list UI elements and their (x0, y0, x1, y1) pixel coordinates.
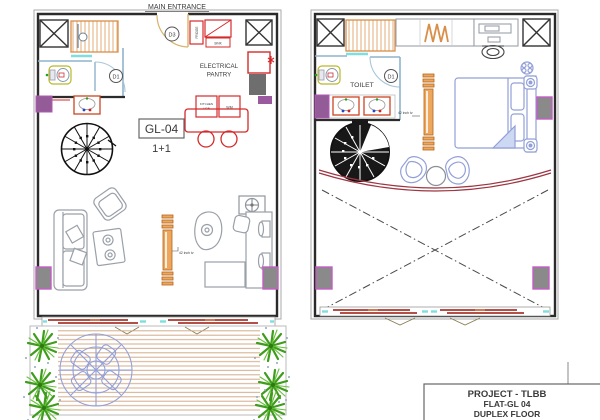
void-cross (322, 190, 548, 310)
hob-label-1: KITCHEN (200, 102, 213, 106)
floor-title: DUPLEX FLOOR (474, 409, 541, 419)
toilet-label: TOILET (350, 82, 374, 89)
tv-unit-left: 42 inch tv (162, 215, 194, 285)
bed (455, 62, 537, 152)
floor-plan-sheet: MAIN ENTRANCE D3 D1 (0, 0, 600, 420)
plants-left (23, 327, 61, 420)
toilet-fixture-icon (46, 66, 71, 84)
washbasin-icon (364, 97, 390, 115)
sofa (54, 210, 87, 290)
right-floor-plan: D1 TOILET 42 inch tv (311, 10, 558, 325)
sitting-area (397, 153, 474, 188)
column (315, 95, 329, 118)
pantry-label-2: PANTRY (207, 72, 232, 79)
wardrobe (346, 20, 395, 54)
window-wall-right (320, 307, 550, 325)
ceiling-fan-icon (239, 196, 265, 214)
ceiling-fan-icon (521, 62, 533, 74)
door-tag-d1-right: D1 (387, 75, 394, 81)
balcony-deck (23, 326, 290, 420)
washbasin-icon (74, 96, 100, 114)
duct (249, 74, 266, 95)
toilet-room: D1 TOILET (315, 56, 400, 120)
door-tag-d1-left: D1 (112, 75, 119, 81)
tv-size-label: 42 inch tv (398, 111, 413, 115)
armchair (92, 186, 128, 222)
deck-planks (58, 329, 260, 413)
kitchen-pantry: FRIDGE SINK ELECTRICAL PANTRY KITCHEN HO… (185, 20, 274, 147)
spiral-stair-left (62, 124, 117, 175)
column (537, 97, 552, 119)
lounge-chair (195, 212, 222, 250)
pantry-label-1: ELECTRICAL (200, 63, 239, 70)
round-daybed (60, 334, 132, 406)
column (316, 267, 332, 289)
bath-closet (71, 21, 118, 56)
coffee-table (93, 228, 125, 266)
closet (396, 19, 474, 46)
washbasin-icon (333, 97, 359, 115)
electrical-panel (248, 52, 270, 73)
column (258, 96, 272, 104)
flat-title: FLAT-GL 04 (484, 399, 531, 409)
entrance-door-d3: D3 (157, 14, 188, 47)
door-tag-d3: D3 (168, 33, 175, 39)
column (36, 267, 51, 289)
shaft-left (40, 20, 68, 47)
drawing: MAIN ENTRANCE D3 D1 (0, 0, 600, 420)
spiral-stair-right (331, 119, 389, 181)
column (263, 267, 278, 289)
column (36, 96, 52, 112)
column (533, 267, 549, 289)
title-block: PROJECT - TLBB FLAT-GL 04 DUPLEX FLOOR (424, 362, 600, 420)
tv-size-label: 42 inch tv (179, 251, 194, 255)
tv-unit-right: 42 inch tv (398, 74, 434, 150)
main-entrance-label: MAIN ENTRANCE (148, 4, 206, 11)
left-floor-plan: MAIN ENTRANCE D3 D1 (34, 4, 281, 334)
sink-label: SINK (214, 42, 222, 46)
fridge-label: FRIDGE (195, 26, 199, 38)
toilet-fixture-icon (315, 66, 340, 84)
bathroom: D1 (36, 48, 125, 114)
unit-code: GL-04 (145, 122, 179, 136)
unit-type: 1+1 (152, 143, 171, 155)
desk-chair (482, 46, 504, 59)
desk (474, 19, 518, 59)
